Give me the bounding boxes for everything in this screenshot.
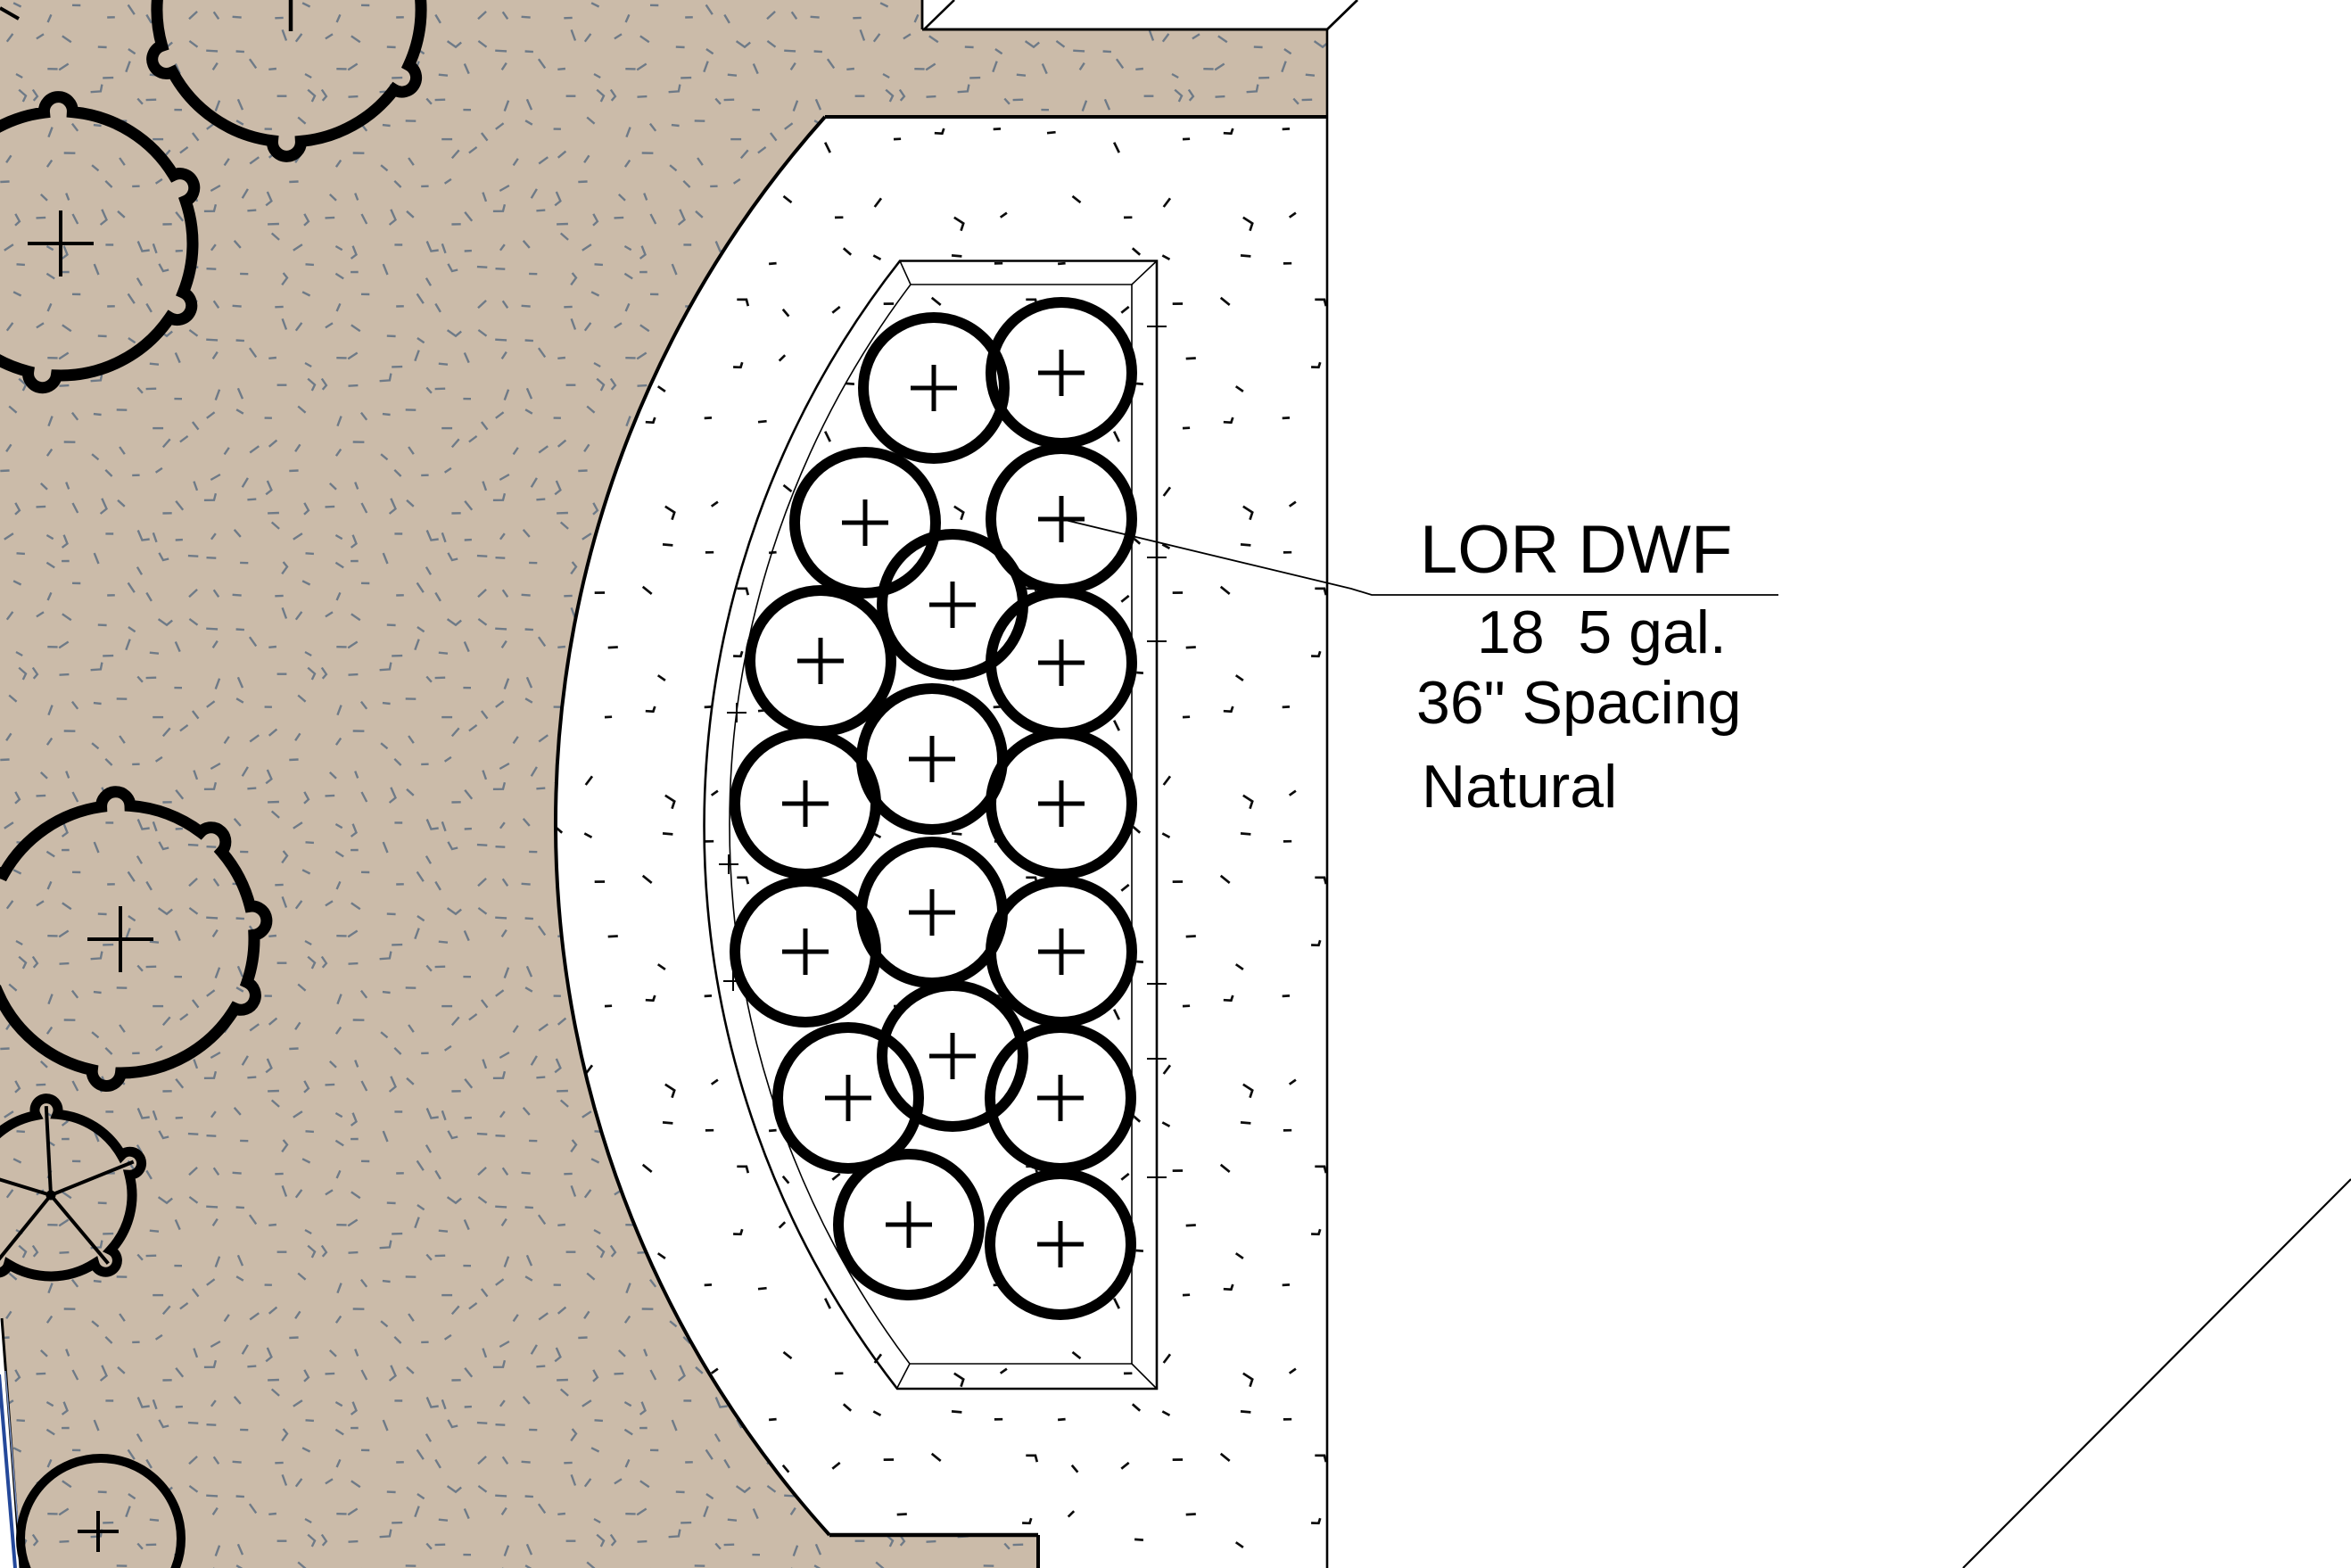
svg-text:LOR DWF: LOR DWF	[1420, 512, 1732, 588]
svg-text:Natural: Natural	[1422, 753, 1617, 821]
svg-text:18 5 gal.: 18 5 gal.	[1477, 598, 1727, 666]
svg-text:36" Spacing: 36" Spacing	[1416, 669, 1741, 737]
